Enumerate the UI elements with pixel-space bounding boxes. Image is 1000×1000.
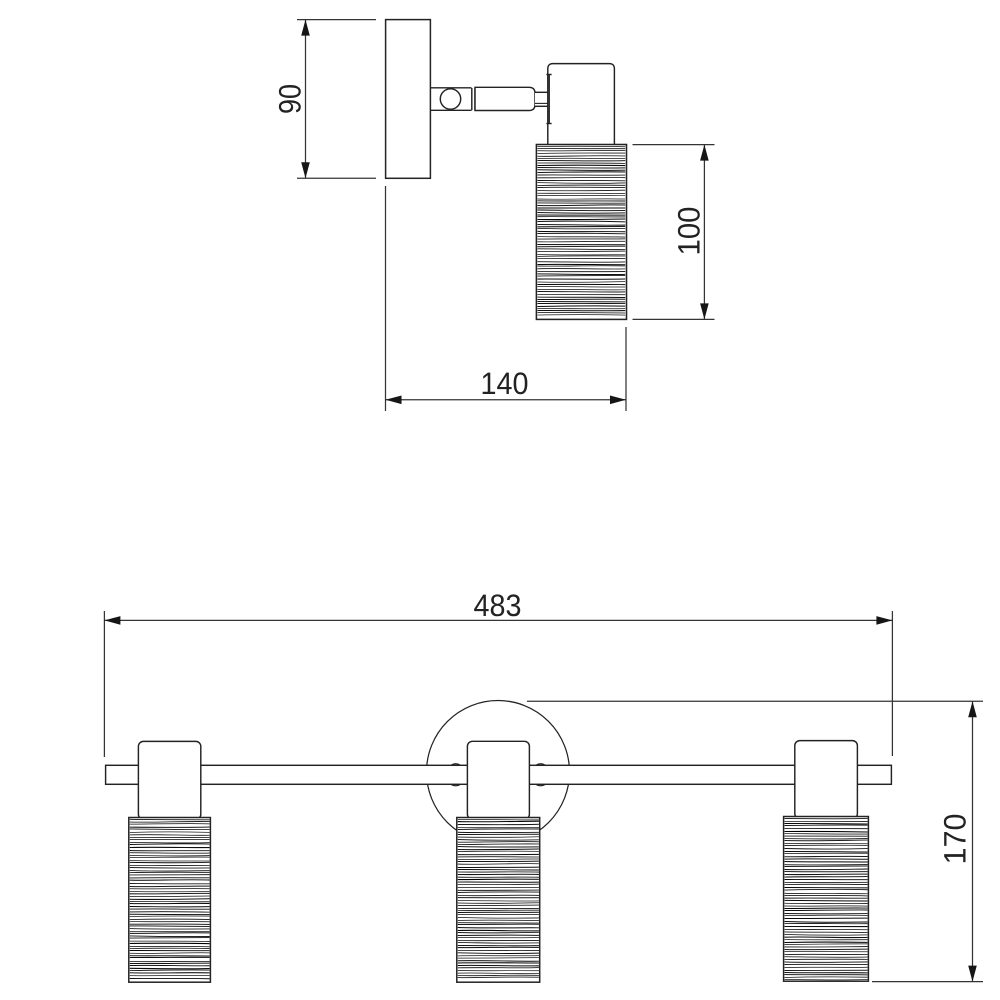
svg-text:483: 483 — [474, 588, 522, 623]
svg-text:90: 90 — [273, 84, 308, 114]
svg-text:100: 100 — [672, 207, 707, 256]
svg-text:170: 170 — [938, 814, 973, 865]
svg-text:140: 140 — [481, 366, 529, 401]
